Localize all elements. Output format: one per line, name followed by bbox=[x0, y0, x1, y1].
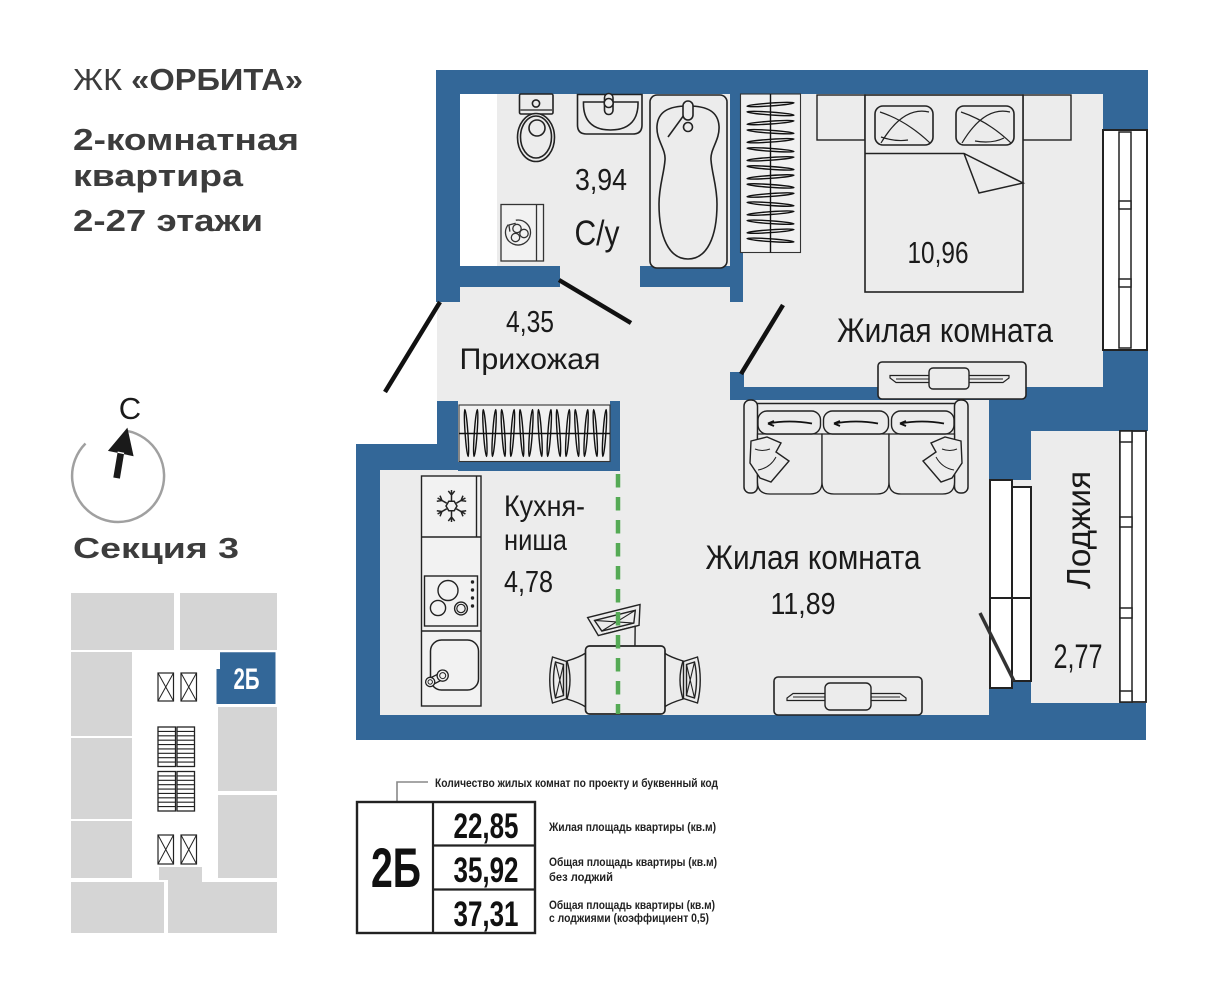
svg-text:4,35: 4,35 bbox=[506, 304, 554, 339]
svg-text:без лоджий: без лоджий bbox=[549, 870, 613, 884]
svg-text:35,92: 35,92 bbox=[454, 851, 519, 890]
svg-text:квартира: квартира bbox=[73, 158, 244, 193]
svg-text:Жилая площадь квартиры (кв.м): Жилая площадь квартиры (кв.м) bbox=[548, 820, 716, 834]
svg-text:11,89: 11,89 bbox=[771, 586, 836, 621]
svg-text:Количество жилых комнат по про: Количество жилых комнат по проекту и бук… bbox=[435, 776, 718, 790]
svg-text:2,77: 2,77 bbox=[1054, 638, 1103, 676]
svg-text:С: С bbox=[119, 391, 141, 426]
svg-text:ЖК «ОРБИТА»: ЖК «ОРБИТА» bbox=[73, 62, 303, 97]
svg-text:22,85: 22,85 bbox=[454, 807, 519, 846]
svg-text:2Б: 2Б bbox=[371, 836, 421, 899]
svg-text:4,78: 4,78 bbox=[504, 564, 553, 599]
svg-text:2Б: 2Б bbox=[234, 663, 260, 696]
svg-text:Жилая комната: Жилая комната bbox=[706, 539, 921, 577]
svg-text:37,31: 37,31 bbox=[454, 895, 519, 934]
svg-text:3,94: 3,94 bbox=[575, 162, 627, 197]
svg-text:10,96: 10,96 bbox=[908, 235, 969, 270]
svg-text:Лоджия: Лоджия bbox=[1060, 471, 1097, 589]
svg-text:2-27 этажи: 2-27 этажи bbox=[73, 203, 263, 238]
svg-text:Прихожая: Прихожая bbox=[460, 343, 601, 376]
svg-text:с лоджиями (коэффициент 0,5): с лоджиями (коэффициент 0,5) bbox=[549, 911, 709, 925]
svg-text:Жилая комната: Жилая комната bbox=[837, 312, 1053, 350]
svg-text:С/у: С/у bbox=[575, 214, 620, 253]
svg-text:Общая площадь квартиры (кв.м): Общая площадь квартиры (кв.м) bbox=[549, 898, 715, 912]
svg-text:Общая площадь квартиры (кв.м): Общая площадь квартиры (кв.м) bbox=[549, 855, 717, 869]
svg-text:Кухня-: Кухня- bbox=[504, 490, 585, 523]
svg-text:Секция 3: Секция 3 bbox=[73, 533, 239, 565]
svg-text:ниша: ниша bbox=[504, 524, 567, 557]
svg-text:2-комнатная: 2-комнатная bbox=[73, 122, 299, 157]
